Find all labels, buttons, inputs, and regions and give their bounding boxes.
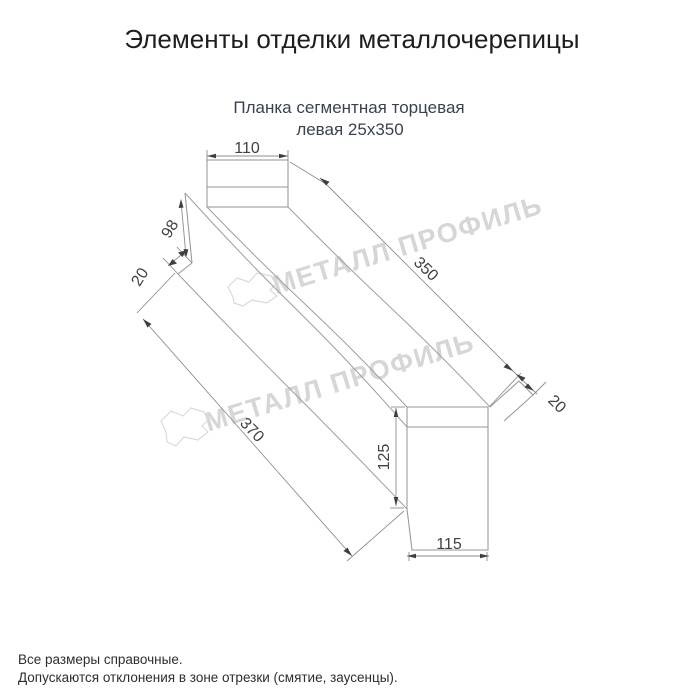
right-end-panel <box>407 407 488 550</box>
left-end-face <box>178 160 288 274</box>
logo-cloud-icon <box>228 273 277 306</box>
dim-115-label: 115 <box>436 536 462 553</box>
right-end-face <box>407 381 533 550</box>
left-end-top-panel <box>207 160 288 207</box>
strip-edge-bottom <box>178 274 407 509</box>
dim-110: 110 <box>207 140 288 162</box>
dim-20-right: 20 <box>513 371 569 417</box>
dim-350-label: 350 <box>410 254 441 285</box>
dim-125-label: 125 <box>376 444 393 471</box>
dim-110-label: 110 <box>234 140 260 157</box>
left-end-flange-edge <box>178 263 192 274</box>
subtitle-line-2: левая 25x350 <box>296 120 403 139</box>
page-title: Элементы отделки металлочерепицы <box>124 24 579 54</box>
product-drawing: Элементы отделки металлочерепицы Планка … <box>0 0 700 700</box>
logo-cloud-icon <box>161 408 208 446</box>
footer-note-1: Все размеры справочные. <box>18 652 183 667</box>
watermark-text-1: МЕТАЛЛ ПРОФИЛЬ <box>269 190 546 301</box>
dim-98-label: 98 <box>159 217 183 241</box>
dim-98: 98 <box>159 199 189 258</box>
dim-20-left-label: 20 <box>129 265 153 289</box>
dim-115: 115 <box>407 536 489 561</box>
dim-20-left: 20 <box>129 247 192 289</box>
subtitle-line-1: Планка сегментная торцевая <box>233 98 464 117</box>
footer-note-2: Допускаются отклонения в зоне отрезки (с… <box>18 670 398 685</box>
dim-125: 125 <box>376 407 405 508</box>
dim-20-right-label: 20 <box>544 392 569 417</box>
